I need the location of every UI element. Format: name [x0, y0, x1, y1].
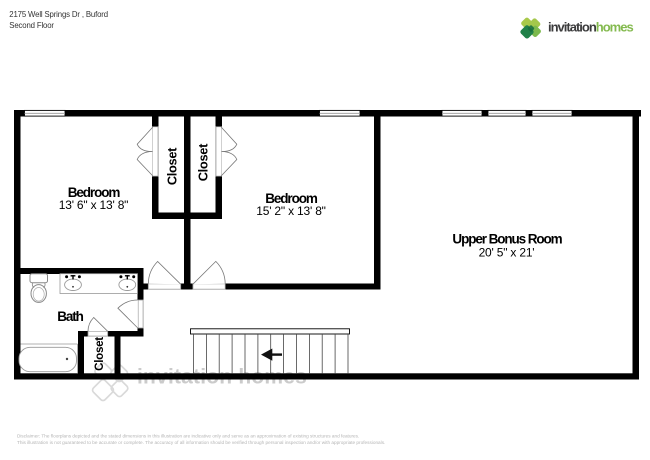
svg-text:invitationhomes: invitationhomes: [548, 20, 633, 35]
svg-text:Closet: Closet: [93, 337, 106, 371]
svg-text:15' 2" x 13' 8": 15' 2" x 13' 8": [256, 204, 325, 218]
svg-text:13' 6" x 13' 8": 13' 6" x 13' 8": [59, 198, 128, 212]
svg-text:Upper Bonus Room: Upper Bonus Room: [452, 231, 562, 246]
svg-text:This illustration is not guara: This illustration is not guaranteed to b…: [17, 440, 385, 445]
svg-text:Closet: Closet: [196, 143, 211, 181]
svg-text:20' 5" x 21': 20' 5" x 21': [479, 245, 535, 259]
svg-text:Disclaimer: The floorplans dep: Disclaimer: The floorplans depicted and …: [17, 433, 359, 438]
svg-text:Bath: Bath: [57, 309, 83, 324]
svg-text:Closet: Closet: [165, 147, 180, 185]
svg-text:Second Floor: Second Floor: [9, 21, 54, 30]
svg-text:2175 Well Springs Dr , Buford: 2175 Well Springs Dr , Buford: [9, 10, 108, 19]
